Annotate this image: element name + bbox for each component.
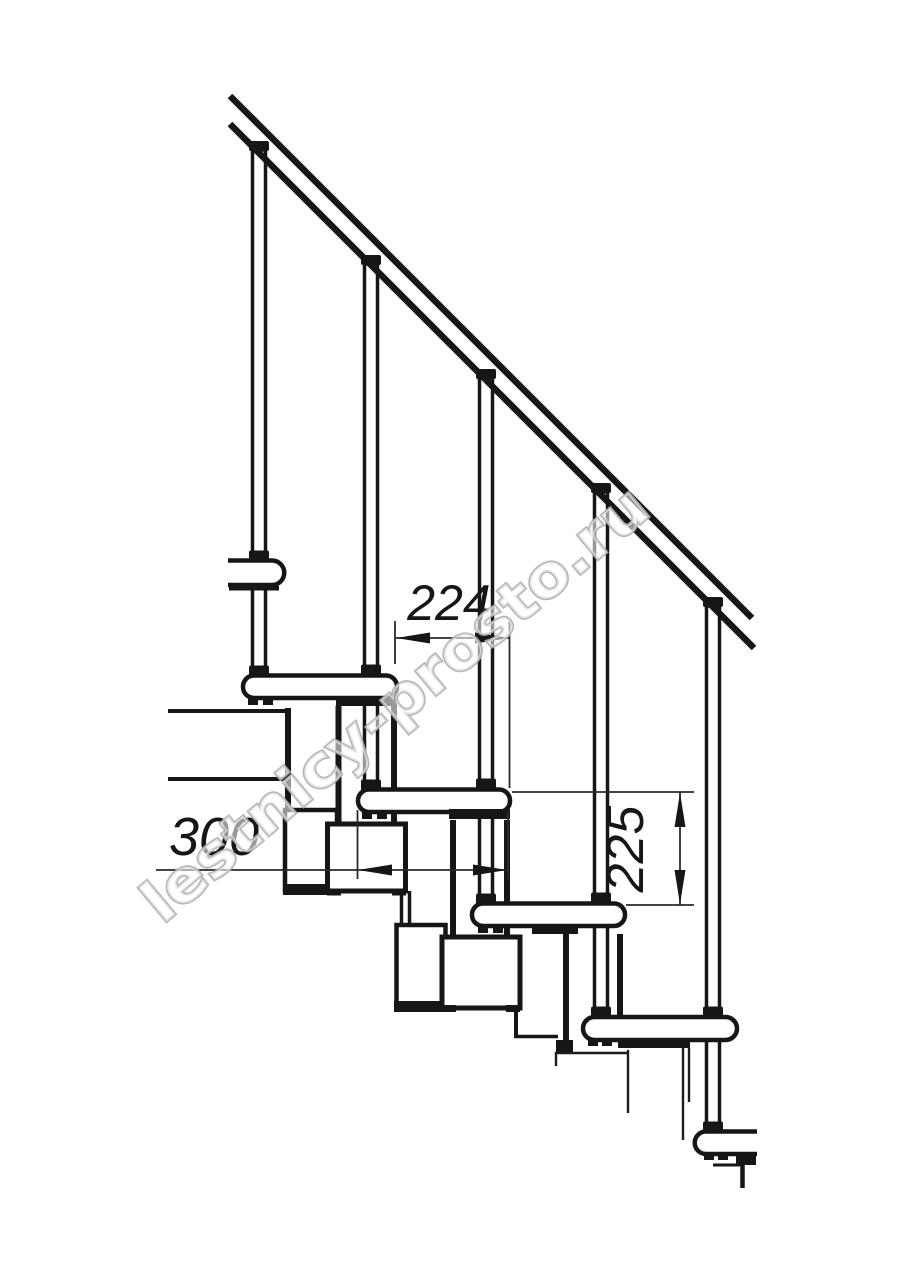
baluster-foot [361, 780, 381, 791]
arrow-down [675, 870, 686, 904]
baluster-foot [591, 1007, 611, 1018]
baluster-collar [591, 893, 611, 904]
tread-upper-nose [228, 561, 284, 586]
tread-2 [358, 790, 510, 813]
module-plate [618, 1039, 690, 1048]
bottom-cut-hook [713, 1165, 743, 1188]
module-plate [449, 809, 510, 819]
baluster-collar [249, 551, 269, 562]
drawing-svg: 224 300 225 lestnicy-prosto.ru [0, 0, 914, 1280]
staircase-technical-drawing: 224 300 225 lestnicy-prosto.ru [0, 0, 914, 1280]
baluster-foot [249, 666, 269, 677]
tread-3 [472, 904, 625, 927]
module-plate [532, 924, 578, 934]
baluster-foot [476, 894, 496, 905]
break-lines [556, 1048, 689, 1140]
dimension-225: 225 [512, 792, 694, 905]
tread-4 [583, 1017, 737, 1040]
baluster-collar [476, 779, 496, 790]
baluster-5 [707, 606, 720, 1133]
arrow-up [675, 793, 686, 827]
dimension-225-label: 225 [597, 805, 655, 894]
baluster-foot [703, 1122, 723, 1133]
baluster-collar [703, 1007, 723, 1018]
baluster-1 [253, 150, 266, 677]
tread-5-cut [695, 1132, 757, 1155]
